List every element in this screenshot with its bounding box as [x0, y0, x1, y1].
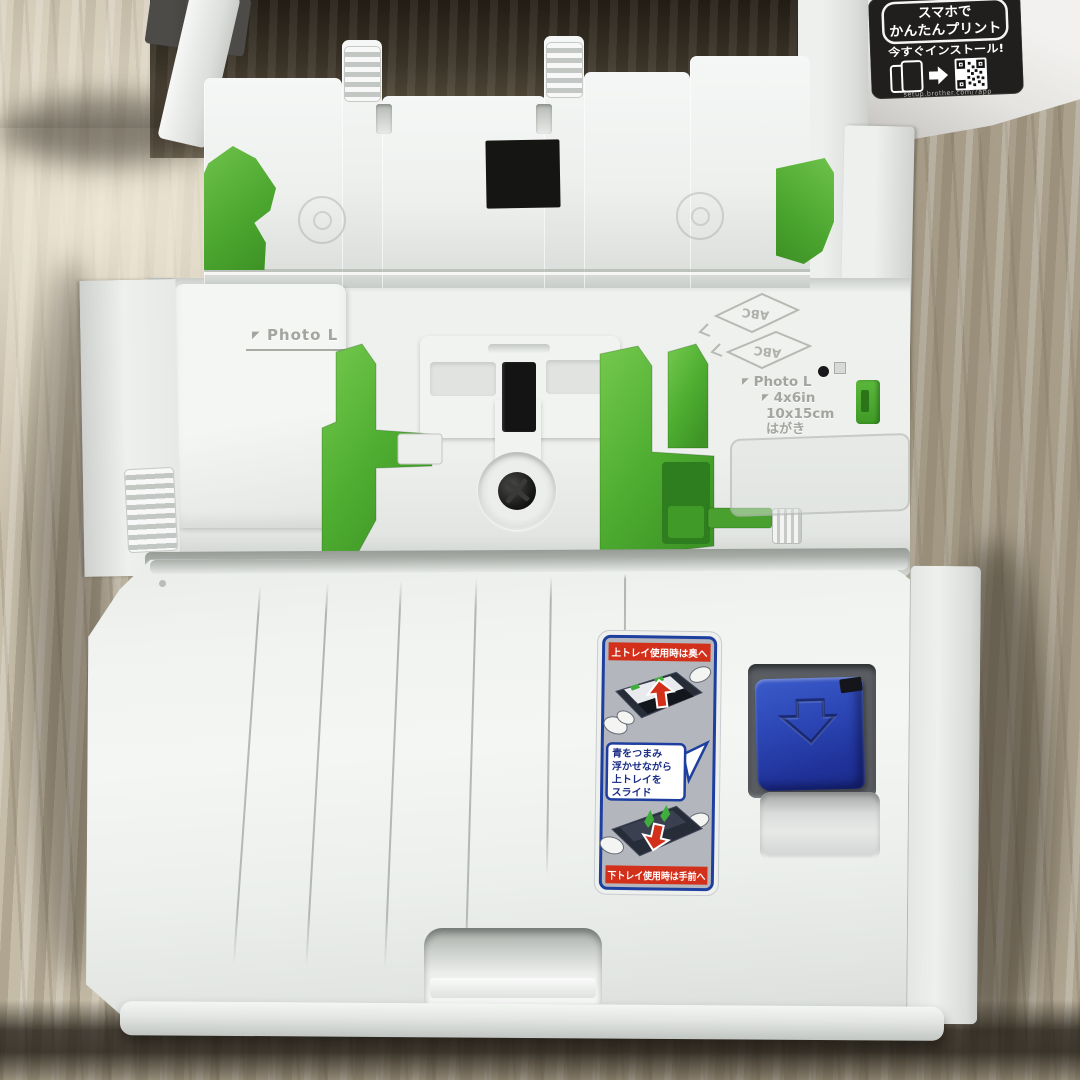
corner-mark-icon-3: ◤ [762, 393, 769, 403]
cover-bottom-lip [120, 1001, 944, 1041]
tray-handle-ledge [430, 978, 596, 998]
smartphone-icon [891, 61, 923, 92]
abc-emboss-diagram: ABC ABC [696, 286, 818, 388]
promo-sticker: スマホで かんたんプリント 今すぐインストール! setup.brother.c… [868, 0, 1024, 101]
bubble-line1: 青をつまみ [612, 746, 662, 760]
emboss-circle-left [298, 196, 346, 244]
deck-notch [834, 362, 846, 374]
emboss-circle-right [676, 192, 724, 240]
promo-headline-line1: スマホで [918, 4, 972, 22]
back-wall-slot-left [376, 104, 392, 134]
bubble-line3: 上トレイを [612, 772, 662, 786]
front-cover-side-face [906, 566, 981, 1025]
deck-hole [818, 366, 829, 377]
back-wall-tab-left-grip [344, 46, 381, 102]
black-pad-top [485, 139, 560, 208]
corner-mark-icon-2: ◤ [742, 377, 749, 387]
right-label-cm: 10x15cm [742, 406, 882, 422]
instruction-sticker: 上トレイ使用時は奥へ 青をつまみ 浮かせながら 上トレイを スライド [593, 629, 723, 897]
cover-dot [159, 580, 166, 587]
right-label-inch: 4x6in [774, 390, 816, 406]
top-band-text: 上トレイ使用時は奥へ [611, 646, 707, 660]
printer-tray-photo: スマホで かんたんプリント 今すぐインストール! setup.brother.c… [0, 0, 1080, 1080]
latch-arrow-emboss [755, 677, 866, 792]
finger-pocket [760, 792, 880, 860]
qr-code-icon [954, 57, 987, 90]
corner-mark-icon: ◤ [252, 330, 261, 341]
tray-back-wall-3 [584, 72, 690, 288]
deck-recess-outline [730, 433, 910, 517]
printer-body-left [0, 0, 186, 128]
guide-pocket-floor [668, 506, 704, 538]
right-label-photo: Photo L [754, 374, 812, 390]
left-rail-grip [124, 467, 178, 554]
back-wall-tab-center-grip [546, 42, 583, 98]
bubble-line2: 浮かせながら [612, 759, 672, 773]
paper-size-labels: ◤ Photo L ◤ 4x6in 10x15cm はがき [742, 374, 882, 438]
guide-clip-white [398, 434, 442, 464]
blue-latch [755, 677, 866, 792]
bubble-line4: スライド [612, 786, 652, 799]
